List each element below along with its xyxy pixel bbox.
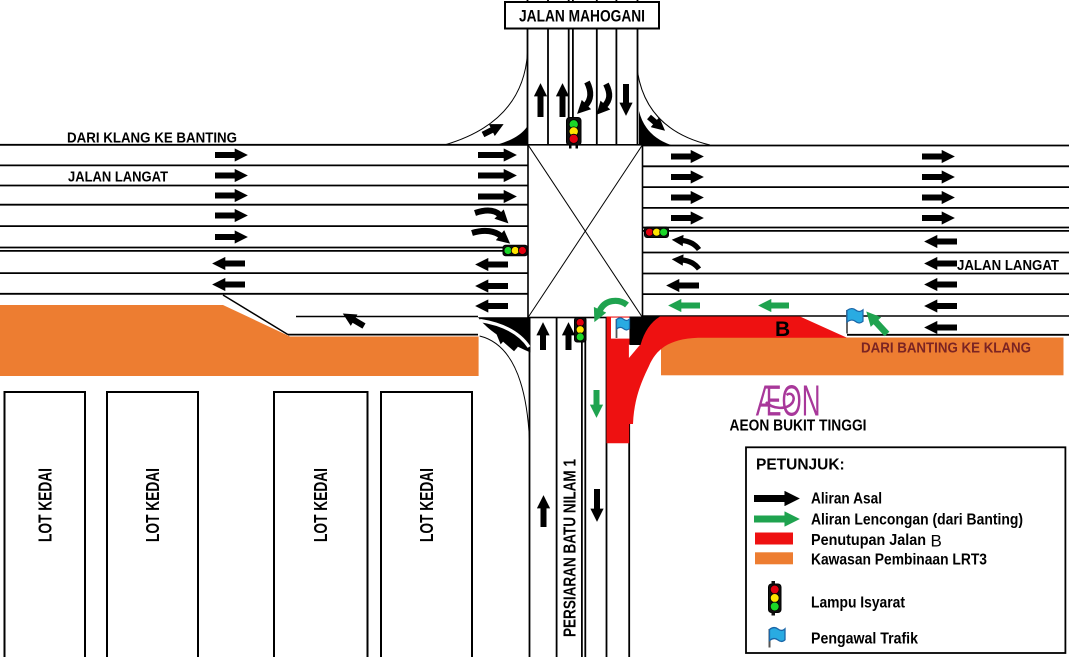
- svg-text:JALAN LANGAT: JALAN LANGAT: [68, 169, 169, 186]
- svg-text:LOT KEDAI: LOT KEDAI: [143, 468, 163, 542]
- svg-text:LOT KEDAI: LOT KEDAI: [36, 468, 56, 542]
- svg-text:JALAN MAHOGANI: JALAN MAHOGANI: [519, 8, 645, 26]
- svg-text:Penutupan Jalan: Penutupan Jalan: [811, 532, 926, 549]
- svg-text:ÆON: ÆON: [756, 377, 821, 426]
- svg-text:PETUNJUK:: PETUNJUK:: [756, 457, 845, 474]
- svg-text:Pengawal Trafik: Pengawal Trafik: [811, 631, 918, 648]
- svg-text:B: B: [931, 532, 942, 551]
- svg-text:B: B: [775, 318, 790, 341]
- svg-text:PERSIARAN BATU NILAM 1: PERSIARAN BATU NILAM 1: [560, 459, 580, 637]
- svg-text:JALAN LANGAT: JALAN LANGAT: [957, 257, 1060, 274]
- svg-text:DARI BANTING KE KLANG: DARI BANTING KE KLANG: [861, 340, 1031, 357]
- svg-text:Aliran Lencongan (dari Banting: Aliran Lencongan (dari Banting): [811, 512, 1023, 529]
- svg-text:Lampu Isyarat: Lampu Isyarat: [811, 595, 905, 612]
- svg-text:LOT KEDAI: LOT KEDAI: [311, 468, 331, 542]
- svg-text:LOT KEDAI: LOT KEDAI: [417, 468, 437, 542]
- svg-text:Kawasan Pembinaan LRT3: Kawasan Pembinaan LRT3: [811, 552, 987, 569]
- svg-text:Aliran Asal: Aliran Asal: [811, 491, 882, 508]
- svg-text:DARI KLANG KE BANTING: DARI KLANG KE BANTING: [67, 130, 237, 147]
